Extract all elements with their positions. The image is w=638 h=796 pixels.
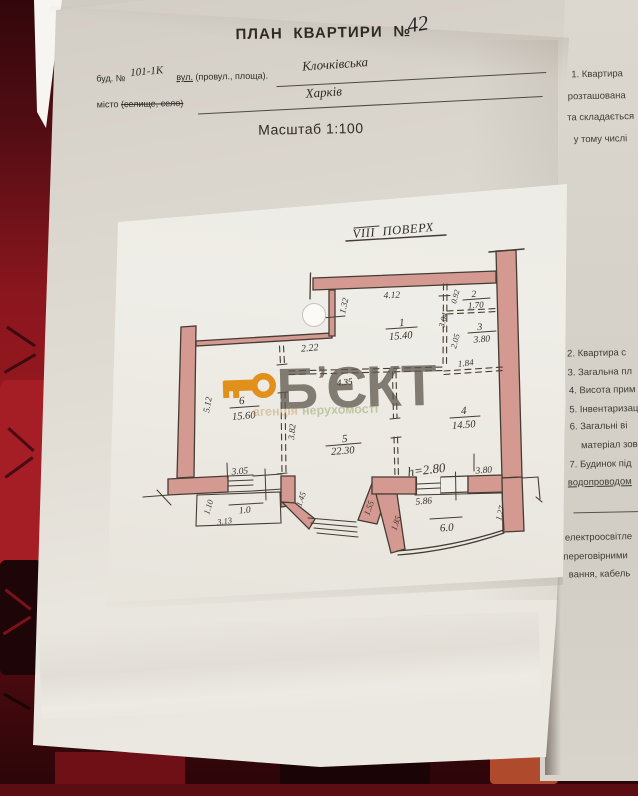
svg-text:h=2.80: h=2.80 bbox=[407, 460, 447, 480]
svg-text:3.05: 3.05 bbox=[230, 466, 249, 477]
svg-text:4.35: 4.35 bbox=[336, 376, 353, 388]
svg-text:5: 5 bbox=[342, 433, 349, 445]
svg-text:0.92: 0.92 bbox=[449, 289, 461, 305]
svg-text:5.86: 5.86 bbox=[415, 496, 433, 507]
svg-text:22.30: 22.30 bbox=[331, 445, 356, 458]
svg-text:14.50: 14.50 bbox=[452, 419, 477, 432]
svg-text:1.84: 1.84 bbox=[457, 357, 474, 369]
svg-text:4.12: 4.12 bbox=[383, 291, 400, 302]
svg-text:6: 6 bbox=[239, 395, 246, 407]
svg-text:2.22: 2.22 bbox=[301, 342, 319, 354]
svg-text:1.0: 1.0 bbox=[238, 505, 251, 516]
svg-text:3.80: 3.80 bbox=[472, 334, 491, 345]
svg-text:1.32: 1.32 bbox=[337, 296, 350, 314]
svg-text:2.05: 2.05 bbox=[448, 333, 462, 350]
svg-text:1.70: 1.70 bbox=[468, 299, 485, 310]
svg-text:3.80: 3.80 bbox=[474, 465, 493, 477]
svg-text:5.12: 5.12 bbox=[201, 396, 214, 414]
svg-text:15.40: 15.40 bbox=[389, 330, 414, 343]
svg-text:1.45: 1.45 bbox=[293, 490, 307, 507]
svg-text:4: 4 bbox=[461, 405, 468, 417]
svg-text:6.0: 6.0 bbox=[440, 522, 455, 535]
svg-text:1.10: 1.10 bbox=[201, 498, 215, 516]
svg-text:3.82: 3.82 bbox=[286, 423, 298, 441]
svg-text:1: 1 bbox=[399, 317, 405, 329]
